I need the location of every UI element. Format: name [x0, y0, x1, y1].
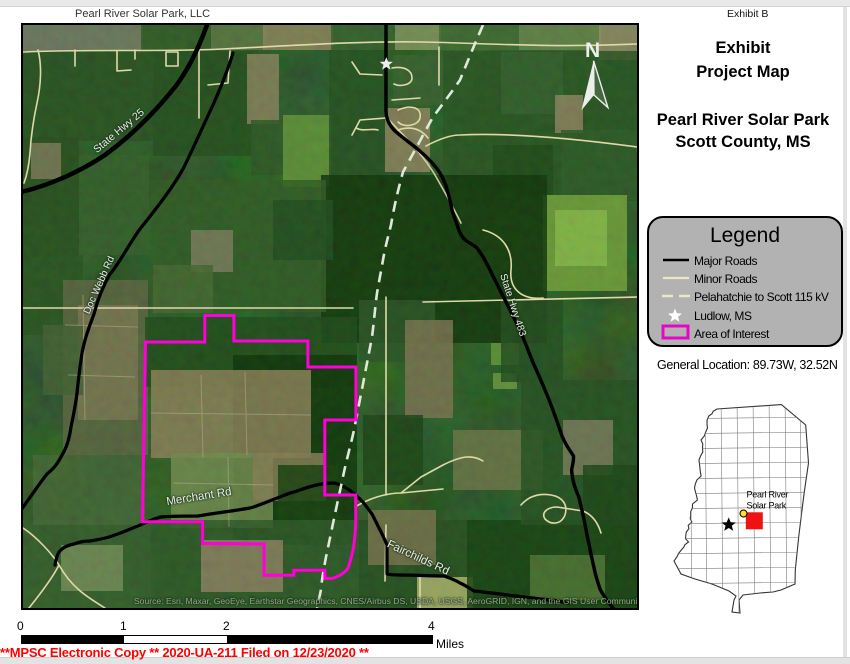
svg-text:Source: Esri, Maxar, GeoEye, E: Source: Esri, Maxar, GeoEye, Earthstar G…: [134, 596, 639, 606]
svg-text:Pearl River: Pearl River: [747, 490, 789, 500]
svg-text:Solar Park: Solar Park: [747, 501, 787, 511]
